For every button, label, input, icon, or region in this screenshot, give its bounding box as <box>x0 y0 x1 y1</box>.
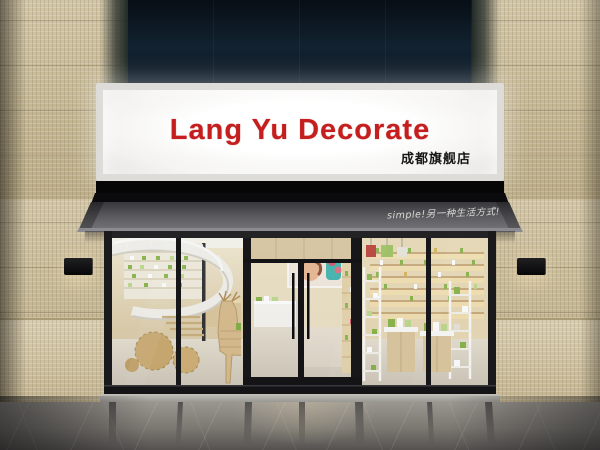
door-handle-right <box>307 273 310 339</box>
wall-lamp-left <box>64 258 93 275</box>
mullion-left <box>176 238 181 385</box>
awning <box>0 187 600 237</box>
upper-facade-panel <box>128 0 472 84</box>
wall-lamp-right <box>517 258 546 275</box>
store-name-text: Lang Yu Decorate <box>103 114 497 147</box>
transom-rail <box>243 259 362 263</box>
floor-corner-shadow-left <box>0 396 150 450</box>
floor-reflection-stripe <box>355 402 364 450</box>
signboard: Lang Yu Decorate 成都旗舰店 <box>96 83 504 181</box>
door-center-stile <box>298 263 304 385</box>
floor-corner-shadow-right <box>450 396 600 450</box>
floor-reflection-stripe <box>299 402 305 450</box>
floor-reflection-stripe <box>244 402 252 450</box>
storefront-glazing <box>104 231 496 403</box>
door-kick-rail <box>243 377 362 385</box>
signboard-lightbox: Lang Yu Decorate 成都旗舰店 <box>103 90 497 174</box>
mullion-right <box>426 238 431 385</box>
store-subtitle-text: 成都旗舰店 <box>401 148 471 167</box>
floor-warm-reflection <box>235 402 375 444</box>
door-handle-left <box>292 273 295 339</box>
storefront-photo: Lang Yu Decorate 成都旗舰店 simple!另一种生活方式! <box>0 0 600 450</box>
